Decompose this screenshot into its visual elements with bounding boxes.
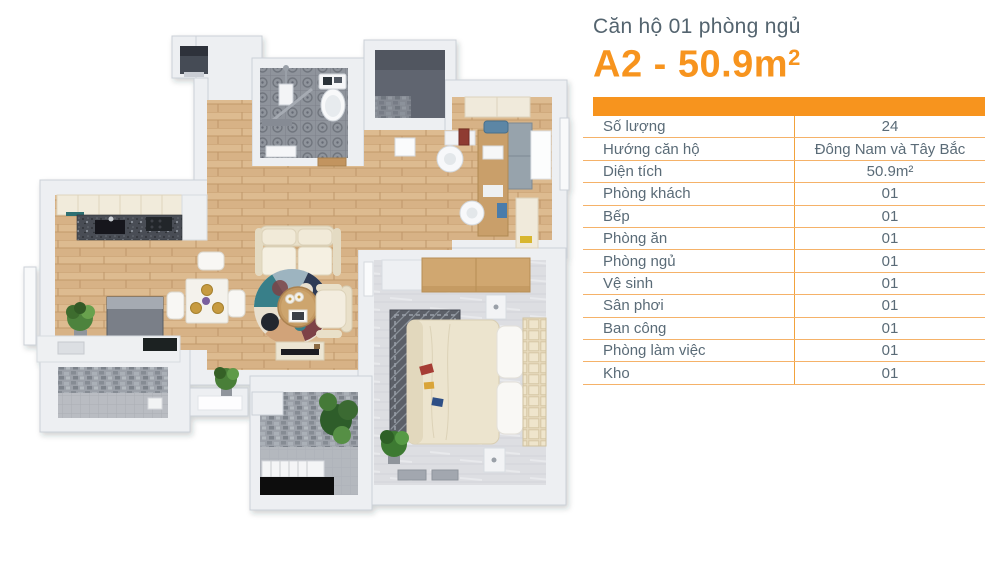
spec-label: Ban công (583, 318, 795, 339)
overhead-cabinet (422, 258, 530, 292)
floorplan-3d (0, 0, 580, 565)
bedroom-door (364, 262, 373, 296)
spec-value: Đông Nam và Tây Bắc (795, 141, 985, 158)
doormat (432, 470, 458, 480)
sink (95, 220, 125, 234)
spec-row-living-room: Phòng khách 01 (583, 183, 985, 205)
spec-label: Sân phơi (583, 295, 795, 316)
laptop (483, 146, 503, 159)
spec-value: 01 (795, 342, 985, 359)
spec-value: 24 (795, 118, 985, 135)
pillow (497, 382, 523, 434)
spec-label: Bếp (583, 206, 795, 227)
bathroom-door (318, 158, 346, 166)
spec-row-work-room: Phòng làm việc 01 (583, 340, 985, 362)
hall-floor (207, 100, 252, 170)
spec-row-dining-room: Phòng ăn 01 (583, 228, 985, 250)
spec-table: Số lượng 24 Hướng căn hộ Đông Nam và Tây… (583, 97, 985, 385)
window (531, 131, 551, 179)
pillow (497, 326, 523, 378)
spec-value: 01 (795, 253, 985, 270)
drain (148, 398, 162, 409)
hob (146, 217, 172, 231)
spec-label: Diện tích (583, 161, 795, 182)
spec-row-storage: Kho 01 (583, 362, 985, 384)
spec-value: 01 (795, 275, 985, 292)
chair (228, 290, 245, 317)
drying-yard (148, 398, 162, 409)
magazine (424, 382, 435, 390)
window-sill (198, 396, 242, 410)
spec-value: 01 (795, 365, 985, 382)
drying-yard-wallface (58, 367, 168, 393)
spec-row-quantity: Số lượng 24 (583, 116, 985, 138)
stool (484, 121, 508, 133)
red-book (459, 129, 469, 145)
toilet (319, 74, 346, 121)
spec-row-bathroom: Vệ sinh 01 (583, 273, 985, 295)
tv-cabinet (276, 342, 324, 360)
spec-row-drying-yard: Sân phơi 01 (583, 295, 985, 317)
spec-value: 50.9m² (795, 163, 985, 180)
lower-counter (37, 336, 180, 362)
chair (198, 252, 224, 270)
spec-label: Phòng ăn (583, 228, 795, 249)
spec-value: 01 (795, 297, 985, 314)
unit-type-label: Căn hộ 01 phòng ngủ (593, 15, 801, 39)
tv (281, 349, 319, 355)
spec-row-area: Diện tích 50.9m² (583, 161, 985, 183)
centerpiece (202, 297, 210, 305)
chair (167, 292, 184, 319)
spec-row-direction: Hướng căn hộ Đông Nam và Tây Bắc (583, 138, 985, 160)
doormat (398, 470, 426, 480)
spec-label: Hướng căn hộ (583, 138, 795, 159)
window-left (24, 267, 36, 345)
spec-value: 01 (795, 185, 985, 202)
spec-row-kitchen: Bếp 01 (583, 206, 985, 228)
spec-label: Phòng khách (583, 183, 795, 204)
bath-cabinet (266, 146, 296, 157)
bed (407, 320, 523, 444)
nightstand-bottom (484, 448, 505, 472)
books (497, 203, 507, 218)
coffee-table (278, 287, 318, 327)
sofa (255, 226, 341, 276)
table-header-bar (593, 97, 985, 116)
spec-label: Phòng làm việc (583, 340, 795, 361)
unit-title: A2 - 50.9m2 (593, 43, 801, 87)
spec-row-balcony: Ban công 01 (583, 318, 985, 340)
spec-label: Phòng ngủ (583, 250, 795, 271)
nightstand-top (486, 295, 506, 319)
spec-value: 01 (795, 320, 985, 337)
storage-door (395, 138, 415, 156)
shelf (382, 260, 422, 290)
office-chair (437, 146, 463, 172)
page: Căn hộ 01 phòng ngủ A2 - 50.9m2 Số lượng… (0, 0, 1000, 565)
spec-label: Vệ sinh (583, 273, 795, 294)
storage-room-floor (375, 50, 445, 118)
headboard (523, 318, 546, 446)
spec-value: 01 (795, 208, 985, 225)
spec-label: Kho (583, 362, 795, 383)
spec-value: 01 (795, 230, 985, 247)
office-chair-2 (460, 201, 484, 225)
spec-row-bedroom: Phòng ngủ 01 (583, 250, 985, 272)
spec-label: Số lượng (583, 116, 795, 137)
stair-opening (260, 477, 334, 495)
window-right-jut (560, 118, 569, 190)
entry-door (180, 46, 208, 77)
